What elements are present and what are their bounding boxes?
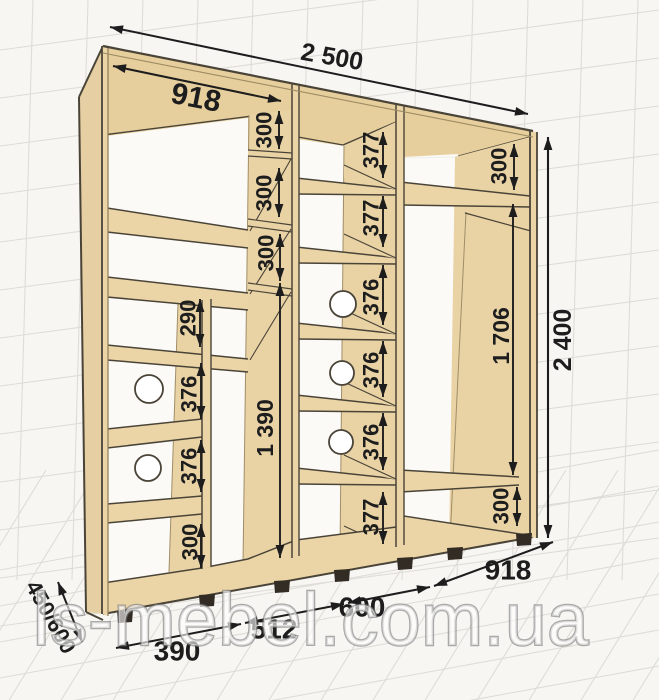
svg-text:376: 376 <box>359 424 384 461</box>
svg-text:300: 300 <box>252 175 277 212</box>
svg-text:1 390: 1 390 <box>252 399 278 457</box>
svg-text:377: 377 <box>359 200 384 237</box>
svg-text:300: 300 <box>252 112 277 149</box>
svg-text:1 706: 1 706 <box>488 307 514 365</box>
svg-text:376: 376 <box>359 352 384 389</box>
svg-text:290: 290 <box>176 300 201 337</box>
svg-text:2 400: 2 400 <box>549 309 577 372</box>
svg-text:300: 300 <box>489 488 514 525</box>
svg-text:376: 376 <box>359 279 384 316</box>
svg-text:300: 300 <box>487 148 512 185</box>
svg-text:376: 376 <box>177 448 202 485</box>
svg-text:377: 377 <box>359 132 384 169</box>
svg-text:376: 376 <box>177 376 202 413</box>
svg-text:377: 377 <box>359 499 384 536</box>
svg-text:300: 300 <box>178 524 203 561</box>
svg-text:300: 300 <box>254 235 279 272</box>
svg-text:ls-mebel.com.ua: ls-mebel.com.ua <box>33 578 589 661</box>
